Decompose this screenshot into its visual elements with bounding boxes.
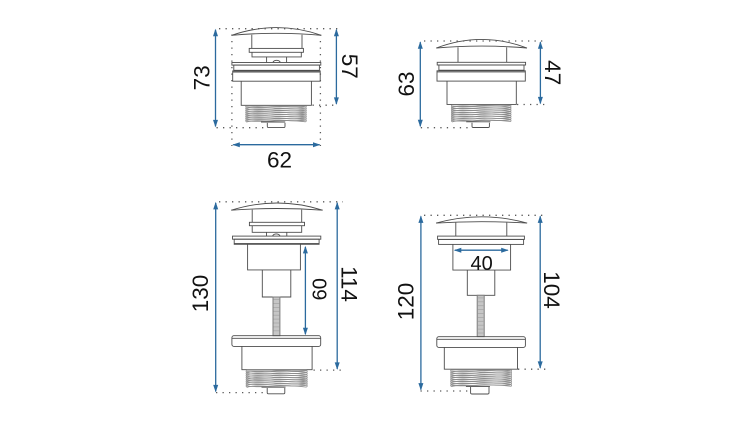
svg-text:104: 104 [539,271,564,309]
svg-text:60: 60 [309,278,331,300]
svg-text:47: 47 [540,60,565,85]
svg-text:114: 114 [336,266,361,302]
svg-text:57: 57 [337,54,362,79]
svg-text:73: 73 [189,65,214,90]
svg-text:62: 62 [267,147,292,172]
svg-text:63: 63 [394,71,419,96]
svg-text:120: 120 [393,283,418,321]
svg-text:40: 40 [470,253,492,275]
svg-text:130: 130 [188,275,213,313]
